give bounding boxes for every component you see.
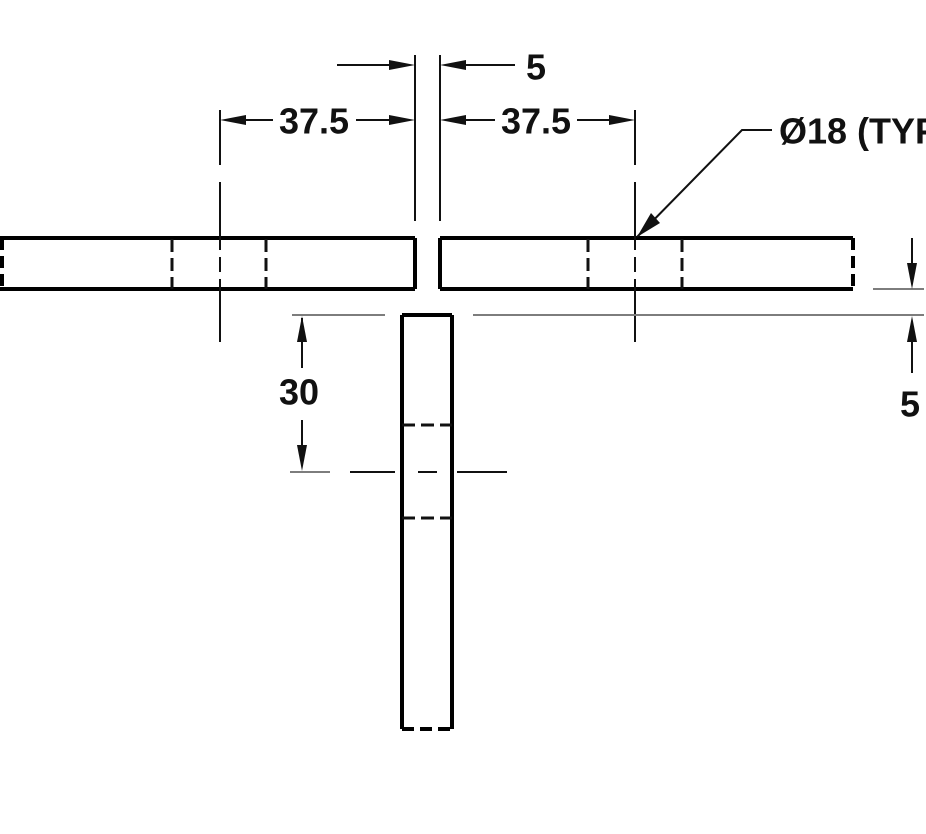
dimension-depth: 30 (279, 316, 319, 471)
vertical-plate (402, 315, 452, 729)
extension-lines (290, 289, 924, 472)
dimension-left-offset-label: 37.5 (279, 101, 349, 142)
dimension-depth-label: 30 (279, 372, 319, 413)
right-plate (440, 238, 853, 289)
dimension-gap-top-label: 5 (526, 47, 546, 88)
left-plate (0, 238, 415, 289)
dimension-right-offset: 37.5 (440, 101, 635, 142)
dimension-right-offset-label: 37.5 (501, 101, 571, 142)
dimension-left-offset: 37.5 (220, 101, 415, 142)
dimension-gap-right: 5 (900, 238, 920, 425)
hole-note-leader: Ø18 (TYP (637, 111, 926, 238)
drawing-canvas: 5 37.5 37.5 30 (0, 0, 926, 834)
dimension-gap-right-label: 5 (900, 384, 920, 425)
hole-note-label: Ø18 (TYP (779, 111, 926, 152)
